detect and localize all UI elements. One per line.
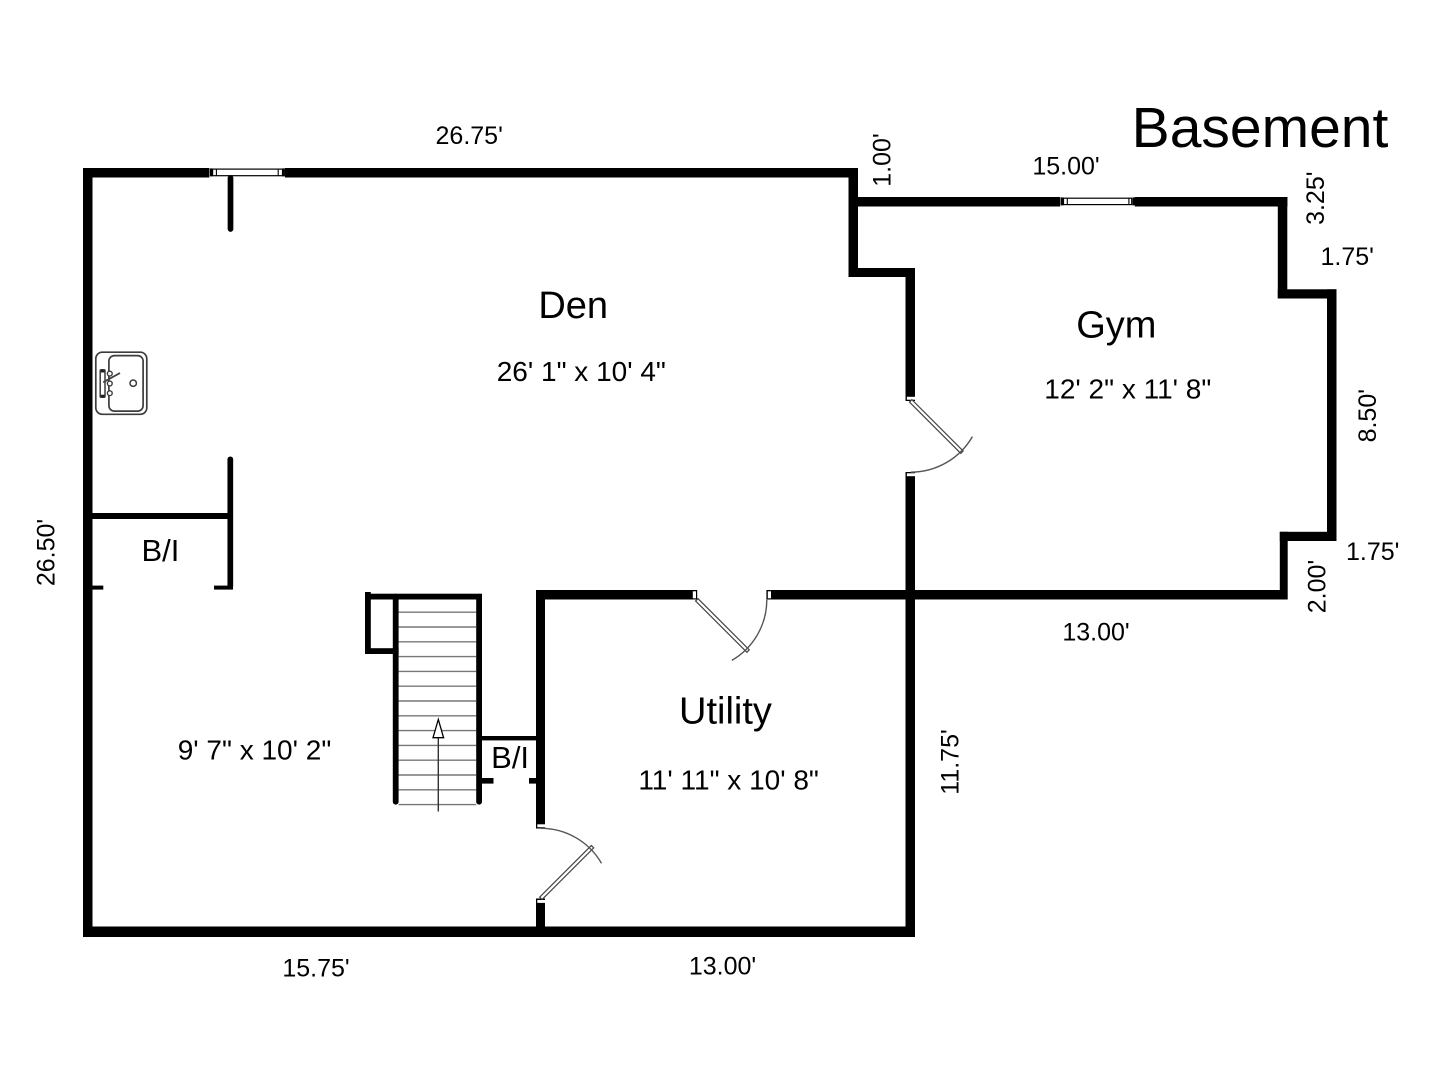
svg-text:1.75': 1.75': [1320, 243, 1373, 271]
svg-text:9' 7" x 10' 2": 9' 7" x 10' 2": [178, 735, 332, 766]
svg-text:12' 2" x 11' 8": 12' 2" x 11' 8": [1044, 374, 1211, 405]
svg-text:15.00': 15.00': [1032, 153, 1099, 181]
svg-text:1.00': 1.00': [869, 133, 897, 186]
svg-text:13.00': 13.00': [689, 953, 756, 981]
svg-text:11' 11" x 10' 8": 11' 11" x 10' 8": [638, 765, 819, 796]
svg-text:Den: Den: [538, 285, 608, 327]
svg-text:13.00': 13.00': [1062, 619, 1129, 647]
svg-text:B/I: B/I: [491, 740, 529, 775]
svg-text:3.25': 3.25': [1302, 171, 1330, 224]
svg-text:Basement: Basement: [1132, 96, 1389, 160]
svg-text:11.75': 11.75': [937, 729, 965, 794]
svg-text:26' 1" x 10' 4": 26' 1" x 10' 4": [497, 356, 666, 387]
svg-text:15.75': 15.75': [282, 955, 349, 983]
svg-text:Utility: Utility: [679, 691, 772, 733]
svg-text:26.75': 26.75': [436, 122, 503, 150]
svg-text:1.75': 1.75': [1346, 538, 1399, 566]
svg-text:Gym: Gym: [1076, 304, 1156, 346]
svg-text:26.50': 26.50': [33, 519, 61, 586]
svg-text:B/I: B/I: [141, 533, 179, 568]
svg-text:2.00': 2.00': [1304, 560, 1332, 613]
svg-text:8.50': 8.50': [1354, 389, 1382, 442]
